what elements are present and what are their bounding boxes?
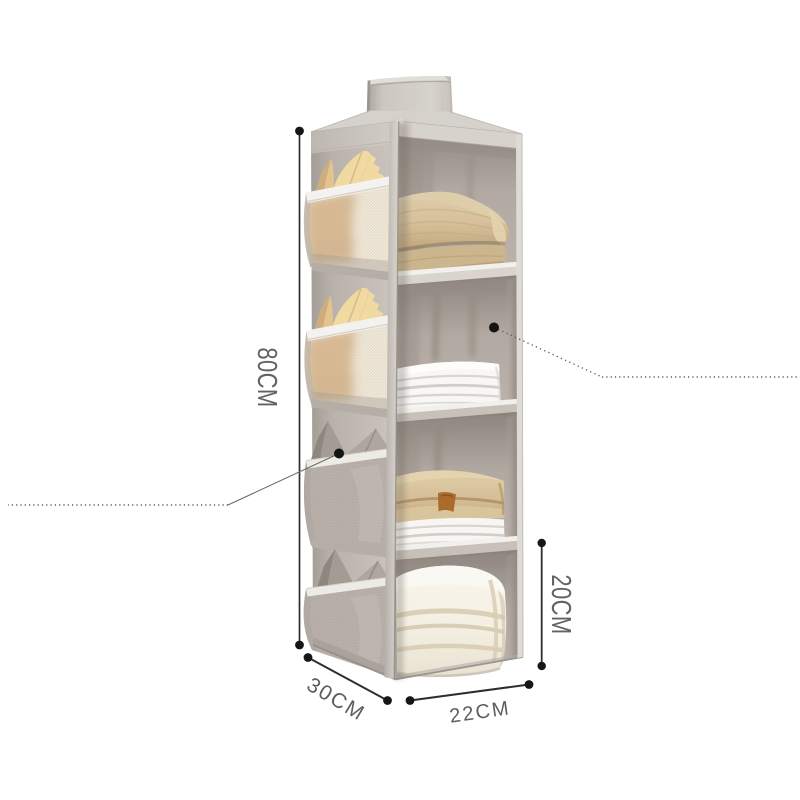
svg-text:20CM: 20CM [546, 574, 577, 634]
svg-text:80CM: 80CM [252, 347, 283, 407]
